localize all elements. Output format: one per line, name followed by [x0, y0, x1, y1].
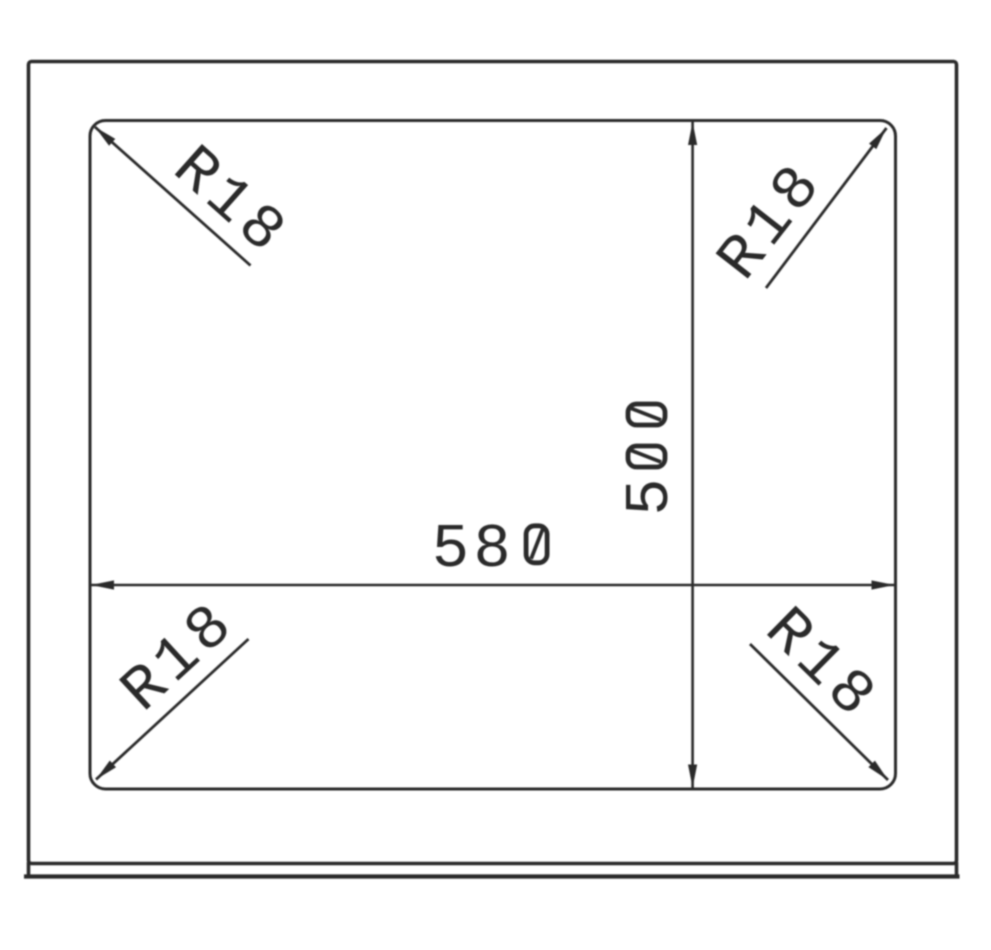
svg-text:5: 5: [432, 514, 469, 585]
svg-text:5: 5: [615, 478, 686, 515]
svg-text:8: 8: [473, 514, 510, 585]
